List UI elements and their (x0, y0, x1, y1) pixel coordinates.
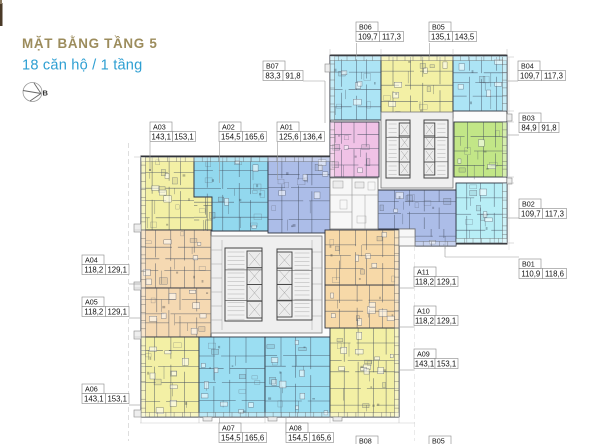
svg-text:165,6: 165,6 (245, 433, 265, 442)
svg-text:B07: B07 (266, 61, 279, 70)
svg-text:A11: A11 (417, 267, 429, 276)
svg-text:110,9: 110,9 (521, 269, 540, 278)
svg-text:143,1: 143,1 (151, 132, 171, 141)
svg-text:118,2: 118,2 (415, 316, 434, 325)
svg-text:A06: A06 (85, 384, 98, 393)
svg-text:154,5: 154,5 (288, 433, 308, 442)
svg-text:129,1: 129,1 (107, 307, 127, 316)
svg-text:129,1: 129,1 (437, 277, 457, 286)
svg-text:A03: A03 (153, 122, 166, 131)
svg-text:91,8: 91,8 (285, 71, 300, 80)
svg-text:118,2: 118,2 (415, 277, 434, 286)
svg-text:A10: A10 (417, 306, 430, 315)
svg-text:109,7: 109,7 (521, 209, 541, 218)
svg-text:B03: B03 (522, 113, 535, 122)
svg-text:B06: B06 (359, 22, 372, 31)
svg-text:165,6: 165,6 (245, 132, 265, 141)
svg-text:B05: B05 (432, 22, 445, 31)
svg-text:A07: A07 (222, 423, 235, 432)
svg-text:B08: B08 (359, 436, 372, 444)
svg-text:109,7: 109,7 (358, 32, 378, 41)
svg-text:B01: B01 (522, 259, 535, 268)
svg-text:MẶT BẰNG TẦNG 5: MẶT BẰNG TẦNG 5 (22, 36, 157, 51)
svg-text:A08: A08 (289, 423, 302, 432)
svg-text:136,4: 136,4 (303, 132, 323, 141)
svg-text:153,1: 153,1 (437, 359, 457, 368)
svg-text:135,1: 135,1 (431, 32, 451, 41)
svg-text:84,9: 84,9 (521, 123, 536, 132)
svg-text:143,1: 143,1 (415, 359, 435, 368)
svg-text:154,5: 154,5 (221, 132, 241, 141)
svg-text:A09: A09 (417, 349, 430, 358)
svg-text:83,3: 83,3 (265, 71, 280, 80)
svg-text:B05: B05 (432, 436, 445, 444)
svg-text:165,6: 165,6 (312, 433, 332, 442)
svg-text:153,1: 153,1 (107, 394, 127, 403)
svg-text:B04: B04 (521, 61, 534, 70)
svg-text:B: B (43, 89, 49, 98)
svg-text:117,3: 117,3 (545, 209, 564, 218)
svg-text:A04: A04 (85, 255, 98, 264)
svg-text:A05: A05 (85, 297, 98, 306)
svg-text:143,5: 143,5 (455, 32, 475, 41)
svg-text:117,3: 117,3 (544, 71, 563, 80)
svg-text:153,1: 153,1 (174, 132, 194, 141)
svg-text:125,6: 125,6 (279, 132, 299, 141)
svg-text:118,2: 118,2 (84, 307, 103, 316)
svg-text:A01: A01 (280, 122, 293, 131)
svg-text:18 căn hộ / 1 tầng: 18 căn hộ / 1 tầng (22, 58, 142, 74)
svg-text:A02: A02 (222, 122, 235, 131)
svg-text:129,1: 129,1 (437, 316, 457, 325)
svg-text:154,5: 154,5 (221, 433, 241, 442)
svg-text:117,3: 117,3 (382, 32, 401, 41)
svg-text:118,2: 118,2 (84, 265, 103, 274)
svg-text:91,8: 91,8 (541, 123, 556, 132)
svg-text:B02: B02 (522, 199, 535, 208)
svg-text:118,6: 118,6 (545, 269, 564, 278)
svg-text:143,1: 143,1 (84, 394, 104, 403)
svg-text:109,7: 109,7 (520, 71, 540, 80)
svg-text:129,1: 129,1 (107, 265, 127, 274)
